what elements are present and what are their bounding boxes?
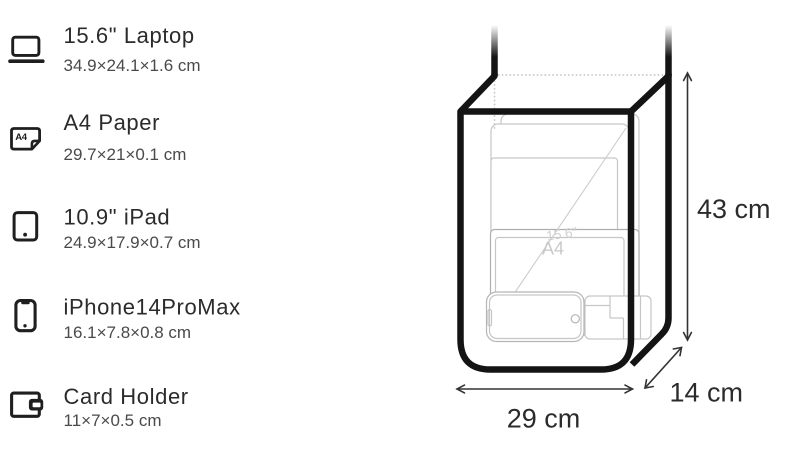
svg-text:24.9×17.9×0.7 cm: 24.9×17.9×0.7 cm	[64, 233, 201, 252]
svg-text:11×7×0.5 cm: 11×7×0.5 cm	[64, 411, 162, 430]
svg-text:16.1×7.8×0.8 cm: 16.1×7.8×0.8 cm	[64, 323, 192, 342]
svg-text:34.9×24.1×1.6 cm: 34.9×24.1×1.6 cm	[64, 56, 201, 75]
svg-text:iPhone14ProMax: iPhone14ProMax	[64, 295, 241, 320]
svg-text:29.7×21×0.1 cm: 29.7×21×0.1 cm	[64, 145, 187, 164]
svg-text:14 cm: 14 cm	[670, 378, 744, 408]
svg-text:10.9" iPad: 10.9" iPad	[64, 205, 171, 230]
svg-text:Card Holder: Card Holder	[64, 384, 189, 409]
svg-text:29 cm: 29 cm	[507, 403, 581, 433]
svg-text:A4: A4	[15, 132, 27, 143]
svg-text:A4 Paper: A4 Paper	[64, 110, 161, 135]
svg-text:15.6" Laptop: 15.6" Laptop	[64, 23, 195, 48]
svg-text:43 cm: 43 cm	[697, 194, 771, 224]
svg-text:A4: A4	[542, 239, 564, 259]
